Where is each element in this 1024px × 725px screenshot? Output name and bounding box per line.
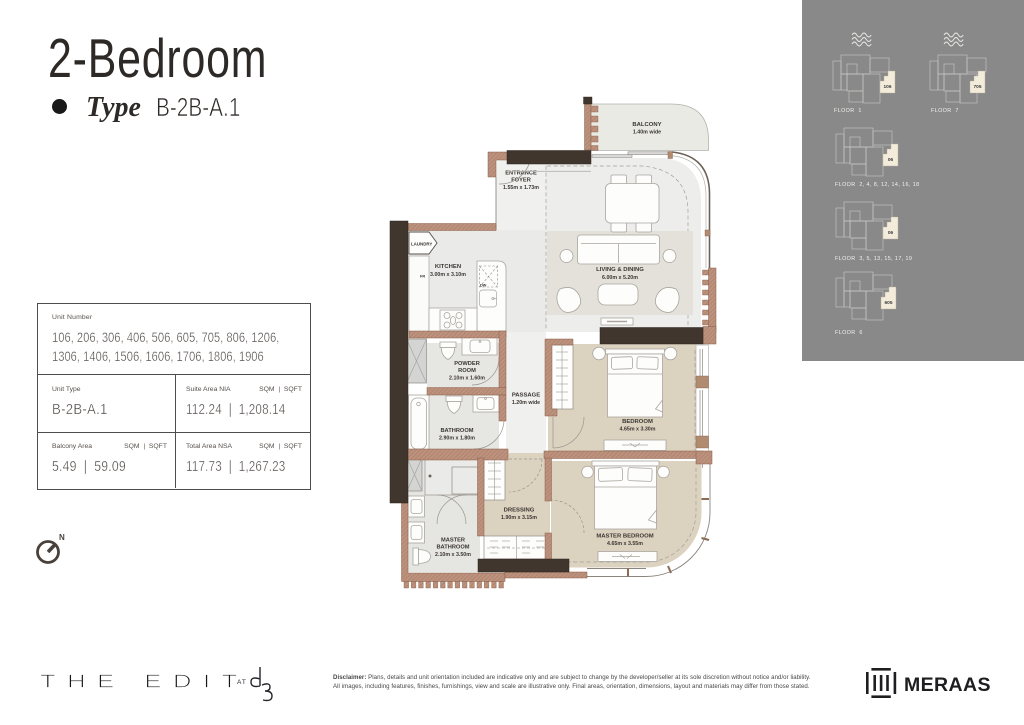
svg-text:3.00m x 3.10m: 3.00m x 3.10m [430,272,466,278]
svg-text:FLOOR 7: FLOOR 7 [931,108,959,114]
svg-text:106: 106 [883,84,891,90]
svg-text:705: 705 [973,84,981,90]
svg-text:4.65m x 3.30m: 4.65m x 3.30m [620,427,656,433]
svg-text:FLOOR 2, 4, 8, 12, 14, 16, 18: FLOOR 2, 4, 8, 12, 14, 16, 18 [835,182,920,188]
svg-text:1.40m wide: 1.40m wide [633,130,661,136]
svg-text:1.20m wide: 1.20m wide [512,400,540,406]
svg-text:06: 06 [888,230,894,236]
svg-text:FR: FR [420,275,425,279]
svg-text:BEDROOM: BEDROOM [622,419,653,425]
svg-text:2.10m x 1.60m: 2.10m x 1.60m [449,376,485,382]
svg-text:PASSAGE: PASSAGE [512,393,540,399]
svg-text:LAUNDRY: LAUNDRY [411,242,432,247]
svg-text:MASTER BEDROOM: MASTER BEDROOM [596,534,653,540]
svg-text:06: 06 [888,157,894,163]
svg-text:605: 605 [884,300,892,306]
svg-text:2.10m x 3.50m: 2.10m x 3.50m [435,552,471,558]
svg-text:FLOOR 1: FLOOR 1 [834,108,862,114]
svg-text:BATHROOM: BATHROOM [440,428,473,434]
svg-text:MASTER: MASTER [441,538,465,544]
svg-text:1.55m x 1.73m: 1.55m x 1.73m [503,185,539,191]
svg-text:DRESSING: DRESSING [504,508,535,514]
svg-text:DW: DW [480,284,487,288]
svg-text:4.65m x 3.55m: 4.65m x 3.55m [607,541,643,547]
svg-text:1.90m x 3.15m: 1.90m x 3.15m [501,515,537,521]
svg-text:LIVING & DINING: LIVING & DINING [596,267,644,273]
svg-text:FLOOR 3, 5, 13, 15, 17, 19: FLOOR 3, 5, 13, 15, 17, 19 [835,256,912,262]
svg-text:POWDER: POWDER [454,361,480,367]
svg-text:KITCHEN: KITCHEN [435,264,461,270]
svg-text:ROOM: ROOM [458,368,476,374]
svg-text:BALCONY: BALCONY [632,122,661,128]
svg-text:FLOOR 6: FLOOR 6 [835,330,863,336]
svg-text:6.00m x 5.20m: 6.00m x 5.20m [602,275,638,281]
svg-text:BATHROOM: BATHROOM [436,545,469,551]
svg-text:2.90m x 1.80m: 2.90m x 1.80m [439,436,475,442]
